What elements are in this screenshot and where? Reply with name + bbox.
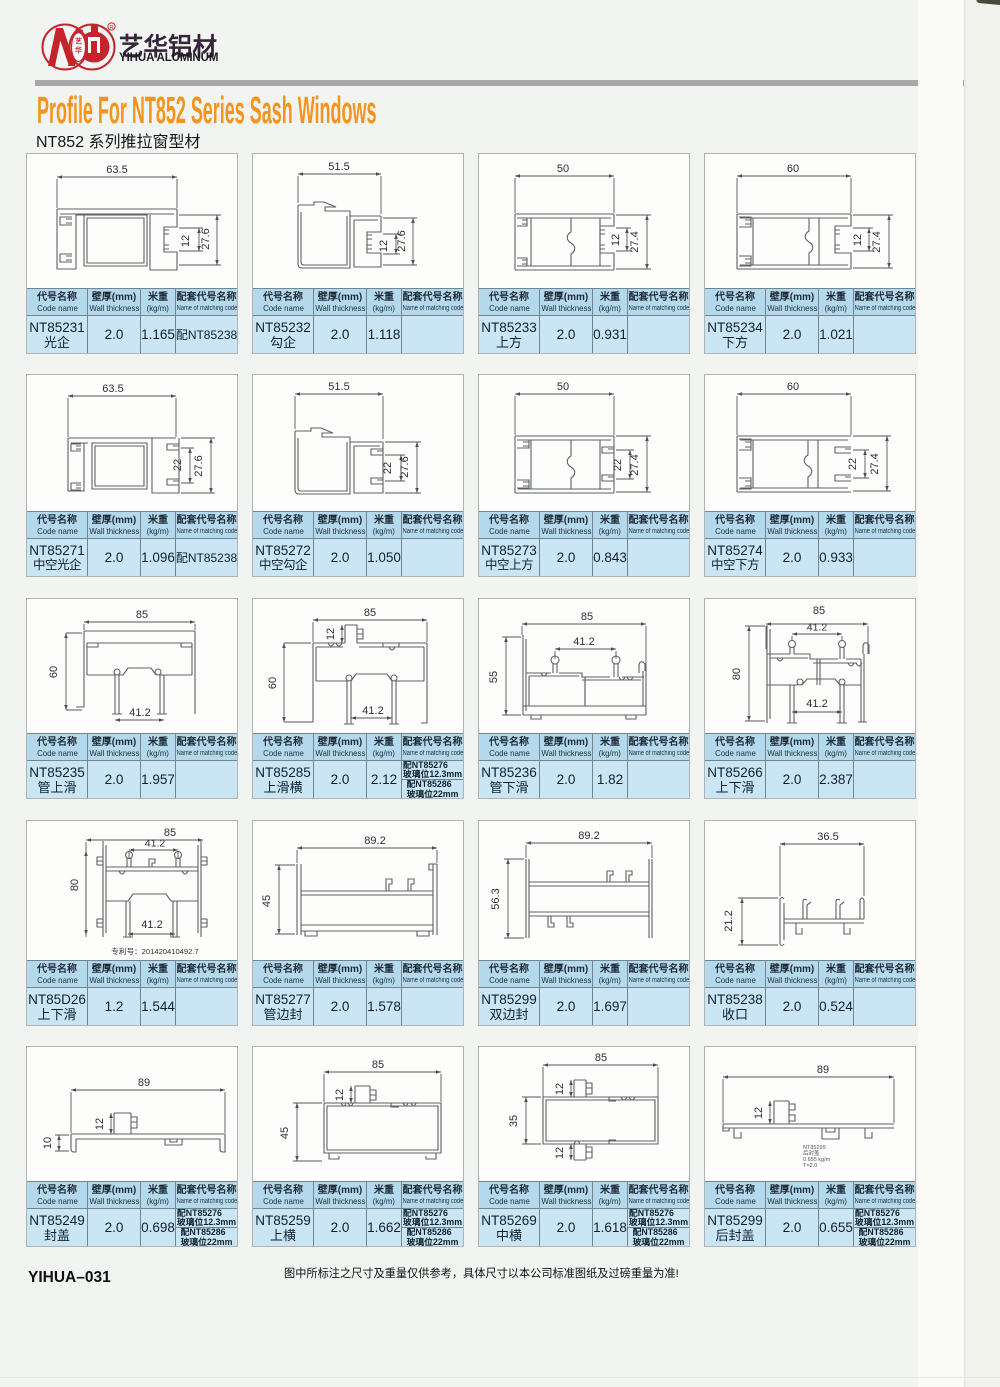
svg-text:27.6: 27.6	[200, 228, 212, 249]
svg-text:22: 22	[172, 459, 184, 471]
svg-text:12: 12	[94, 1118, 106, 1130]
svg-text:T=2.0: T=2.0	[803, 1163, 817, 1169]
svg-text:50: 50	[557, 163, 569, 175]
svg-text:27.4: 27.4	[869, 453, 881, 474]
svg-text:华: 华	[75, 46, 82, 55]
svg-text:36.5: 36.5	[817, 831, 838, 843]
svg-text:85: 85	[136, 609, 148, 621]
svg-text:85: 85	[364, 607, 376, 619]
svg-text:41.2: 41.2	[362, 705, 383, 717]
svg-text:R: R	[110, 25, 114, 31]
svg-text:41.2: 41.2	[807, 622, 828, 634]
svg-text:85: 85	[372, 1059, 384, 1071]
svg-text:27.6: 27.6	[399, 456, 411, 477]
svg-text:41.2: 41.2	[145, 838, 166, 850]
svg-text:60: 60	[48, 666, 60, 678]
svg-text:专利号：201420410492.7: 专利号：201420410492.7	[111, 946, 198, 956]
svg-text:27.4: 27.4	[629, 454, 641, 475]
svg-text:后封盖: 后封盖	[803, 1149, 820, 1157]
svg-text:12: 12	[378, 240, 390, 252]
svg-text:50: 50	[557, 381, 569, 393]
svg-text:12: 12	[554, 1147, 566, 1159]
svg-text:22: 22	[612, 459, 624, 471]
svg-text:60: 60	[787, 381, 799, 393]
svg-text:51.5: 51.5	[328, 381, 349, 393]
svg-text:12: 12	[325, 628, 337, 640]
svg-text:35: 35	[508, 1115, 520, 1127]
svg-text:27.6: 27.6	[193, 455, 205, 476]
svg-text:45: 45	[261, 895, 273, 907]
svg-text:89.2: 89.2	[364, 835, 385, 847]
svg-text:27.4: 27.4	[871, 231, 883, 252]
svg-text:41.2: 41.2	[141, 919, 162, 931]
svg-text:85: 85	[595, 1052, 607, 1064]
svg-text:41.2: 41.2	[806, 698, 827, 710]
svg-text:12: 12	[753, 1107, 765, 1119]
svg-text:63.5: 63.5	[106, 164, 127, 176]
svg-text:60: 60	[787, 163, 799, 175]
svg-text:艺: 艺	[75, 37, 82, 46]
svg-text:85: 85	[813, 605, 825, 617]
svg-text:10: 10	[42, 1137, 54, 1149]
svg-text:89: 89	[138, 1077, 150, 1089]
svg-text:27.4: 27.4	[629, 231, 641, 252]
svg-text:45: 45	[279, 1127, 291, 1139]
svg-text:55: 55	[488, 671, 500, 683]
svg-text:12: 12	[334, 1089, 346, 1101]
svg-text:80: 80	[731, 668, 743, 680]
svg-text:80: 80	[69, 879, 81, 891]
svg-text:12: 12	[554, 1083, 566, 1095]
svg-text:56.3: 56.3	[490, 888, 502, 909]
svg-text:85: 85	[164, 827, 176, 839]
svg-text:21.2: 21.2	[723, 910, 735, 931]
svg-text:51.5: 51.5	[328, 161, 349, 173]
svg-text:12: 12	[852, 234, 864, 246]
svg-text:60: 60	[267, 677, 279, 689]
svg-text:22: 22	[382, 462, 394, 474]
svg-text:89: 89	[817, 1064, 829, 1076]
svg-text:27.6: 27.6	[396, 230, 408, 251]
svg-text:12: 12	[180, 235, 192, 247]
svg-text:89.2: 89.2	[578, 830, 599, 842]
svg-text:63.5: 63.5	[102, 383, 123, 395]
svg-text:41.2: 41.2	[129, 707, 150, 719]
svg-text:12: 12	[610, 234, 622, 246]
svg-text:22: 22	[847, 458, 859, 470]
svg-text:41.2: 41.2	[573, 636, 594, 648]
svg-text:85: 85	[581, 611, 593, 623]
